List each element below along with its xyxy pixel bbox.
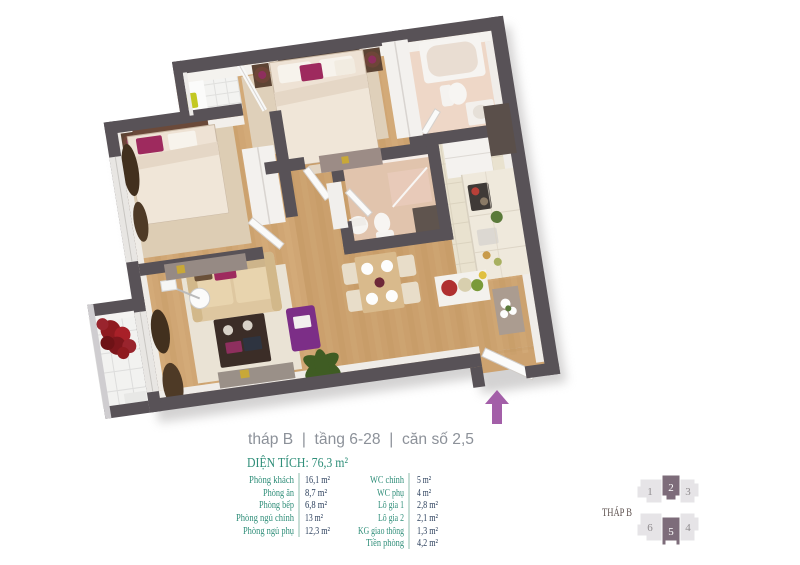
svg-text:WC chính: WC chính [370, 474, 404, 486]
svg-text:Phòng bếp: Phòng bếp [259, 499, 294, 511]
svg-text:Phòng ăn: Phòng ăn [263, 487, 294, 499]
svg-text:Lô gia 2: Lô gia 2 [378, 512, 404, 524]
svg-text:2: 2 [668, 482, 674, 494]
svg-text:4 m²: 4 m² [417, 487, 431, 499]
svg-text:6,8 m²: 6,8 m² [305, 499, 328, 511]
svg-text:5 m²: 5 m² [417, 474, 431, 486]
svg-text:THÁP B: THÁP B [602, 505, 632, 519]
svg-text:2,1 m²: 2,1 m² [417, 512, 439, 524]
svg-text:WC phụ: WC phụ [377, 487, 404, 499]
svg-text:Tiền phòng: Tiền phòng [366, 537, 404, 549]
svg-text:4,2 m²: 4,2 m² [417, 537, 439, 549]
svg-text:2,8 m²: 2,8 m² [417, 499, 439, 511]
svg-text:5: 5 [668, 526, 674, 538]
svg-text:16,1 m²: 16,1 m² [305, 474, 331, 486]
svg-text:Phòng ngủ phụ: Phòng ngủ phụ [243, 525, 294, 537]
svg-text:1: 1 [647, 486, 653, 498]
svg-text:Lô gia 1: Lô gia 1 [378, 499, 404, 511]
svg-text:13 m²: 13 m² [305, 512, 323, 524]
svg-text:tháp B | tầng 6-28 | căn s: tháp B | tầng 6-28 | căn số 2,5 [248, 431, 474, 448]
svg-text:1,3 m²: 1,3 m² [417, 525, 439, 537]
svg-text:Phòng ngủ chính: Phòng ngủ chính [236, 512, 294, 524]
svg-text:4: 4 [685, 522, 691, 534]
svg-text:DIỆN TÍCH: 76,3 m²: DIỆN TÍCH: 76,3 m² [247, 454, 348, 471]
svg-text:6: 6 [647, 522, 653, 534]
svg-text:12,3 m²: 12,3 m² [305, 525, 331, 537]
svg-text:KG giao thông: KG giao thông [358, 525, 404, 537]
svg-text:3: 3 [685, 486, 691, 498]
svg-text:8,7 m²: 8,7 m² [305, 487, 328, 499]
svg-text:Phòng khách: Phòng khách [249, 474, 294, 486]
